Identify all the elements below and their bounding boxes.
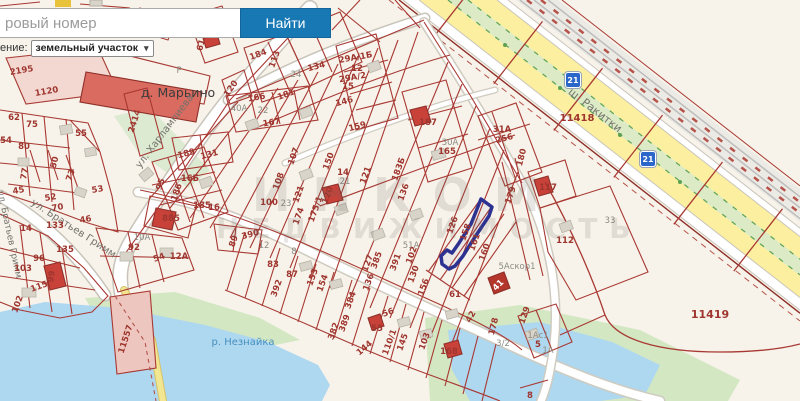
parcel-label: 11418	[560, 113, 595, 124]
parcel-label: 61	[449, 290, 461, 300]
layer-select-label: ение:	[0, 42, 28, 54]
parcel-label: 55	[75, 129, 87, 139]
parcel-label: 5	[535, 340, 541, 350]
parcel-label: 1А	[542, 346, 553, 356]
parcel-label: 83	[267, 260, 279, 270]
cadastral-map-app: { "ui": { "search": { "placeholder_visib…	[0, 0, 800, 401]
layer-type-value: земельный участок	[36, 42, 138, 54]
parcel-label: 33	[605, 216, 616, 226]
parcel-label: 16	[208, 203, 220, 213]
parcel-label: 11419	[691, 308, 729, 321]
parcel-label: 8	[527, 391, 533, 401]
parcel-label: 165	[438, 147, 456, 157]
parcel-label: 96	[33, 254, 45, 264]
parcel-label: 12А	[170, 252, 189, 262]
parcel-label: 112	[556, 236, 574, 246]
parcel-label: 75	[26, 120, 38, 130]
parcel-label: 24	[291, 70, 302, 80]
parcel-label: 40А	[231, 104, 248, 114]
road-sign-badge: 21	[565, 72, 581, 88]
parcel-label: 23	[281, 199, 292, 209]
parcel-label: 8	[291, 247, 296, 257]
parcel-label: 55	[371, 324, 383, 334]
parcel-label: 99	[46, 270, 58, 283]
find-button[interactable]: Найти	[240, 8, 331, 38]
parcel-label: 53	[91, 184, 104, 196]
parcel-label: 92	[128, 243, 140, 253]
layer-select-row: ение: земельный участок ▾	[0, 40, 154, 56]
parcel-label: 15	[342, 82, 354, 92]
parcel-label: 10А	[134, 233, 151, 243]
parcel-label: 62	[8, 113, 20, 123]
parcel-label: 5Аскор1	[498, 262, 535, 272]
parcel-label: 135	[56, 245, 74, 255]
parcel-label: 100	[260, 198, 278, 208]
parcel-label: 168	[440, 347, 458, 357]
parcel-label: 103	[14, 264, 32, 274]
parcel-label: 14	[20, 224, 32, 234]
cadastral-number-input[interactable]	[0, 8, 244, 38]
parcel-label: 187	[419, 118, 437, 128]
parcel-label: 117	[539, 183, 557, 193]
parcel-label: 87	[286, 270, 298, 280]
parcel-label: 3/2	[496, 339, 510, 349]
parcel-label: 885	[162, 214, 180, 224]
parcel-label: 12	[259, 241, 270, 251]
parcel-label: 21	[340, 177, 351, 187]
parcel-label: 133	[46, 221, 64, 231]
parcel-label: 46	[79, 214, 92, 226]
parcel-label: 77	[19, 167, 31, 180]
map-label: д. Марьино	[141, 85, 215, 100]
parcel-label: 80	[18, 142, 30, 152]
parcel-label: Р	[176, 66, 181, 76]
parcel-label: 16Б	[181, 174, 199, 184]
cadastral-map[interactable]: д. МарьиноРул. Харлампиеваул. Братьев Гр…	[0, 0, 800, 401]
parcel-label: 52	[44, 192, 57, 204]
parcel-label: 22	[258, 106, 269, 116]
parcel-label: 70	[51, 202, 64, 214]
parcel-label: 45	[12, 185, 25, 197]
chevron-down-icon: ▾	[144, 43, 149, 54]
road-sign-badge: 21	[640, 151, 656, 167]
layer-type-dropdown[interactable]: земельный участок ▾	[31, 40, 154, 57]
parcel-label: 54	[0, 136, 12, 146]
map-label: р. Незнайка	[211, 337, 274, 348]
